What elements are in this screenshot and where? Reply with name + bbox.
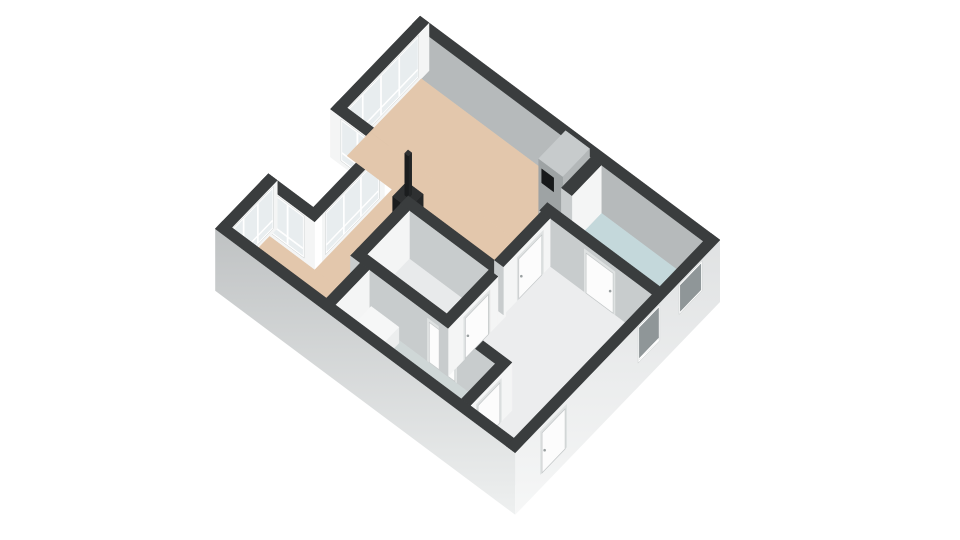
door-handle (467, 334, 470, 337)
stove-pipe (405, 150, 412, 198)
wall-face (504, 362, 512, 418)
floor-plan-3d (0, 0, 960, 540)
stove-pipe-side (409, 153, 412, 198)
stove-pipe-front (405, 153, 409, 198)
floor-plan-viewport (0, 0, 960, 540)
door-handle (609, 290, 612, 293)
wall-face (439, 322, 448, 377)
door-handle (520, 275, 523, 278)
door-handle (543, 449, 546, 452)
